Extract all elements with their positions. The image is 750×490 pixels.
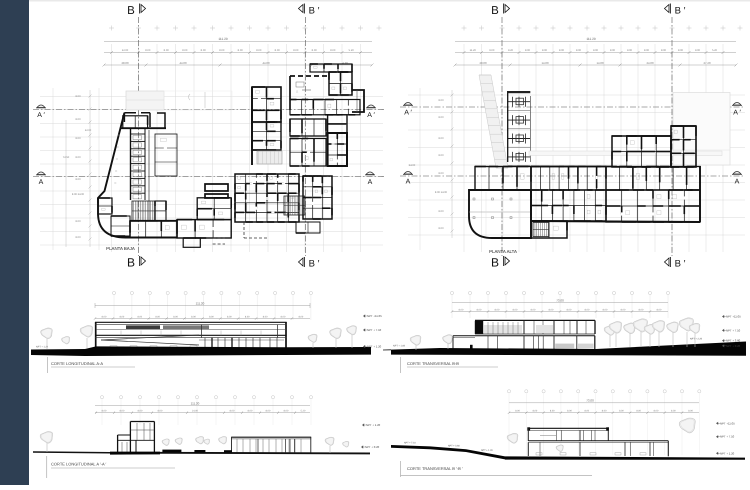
svg-text:8.00: 8.00 (75, 156, 81, 159)
svg-text:8.00: 8.00 (636, 410, 641, 413)
svg-text:8.00: 8.00 (559, 49, 565, 52)
svg-text:NPT + 0.20: NPT + 0.20 (365, 445, 380, 449)
svg-text:8.00: 8.00 (515, 410, 520, 413)
svg-text:8.00: 8.00 (438, 99, 444, 102)
svg-text:8.00: 8.00 (75, 137, 81, 140)
svg-text:64.00: 64.00 (409, 164, 416, 167)
svg-text:8.00: 8.00 (525, 49, 531, 52)
svg-text:NPT + 1.60: NPT + 1.60 (393, 344, 406, 347)
svg-text:8.00: 8.00 (75, 95, 81, 98)
svg-text:8.00: 8.00 (576, 49, 582, 52)
svg-text:B ′: B ′ (675, 259, 686, 270)
svg-text:8.00: 8.00 (238, 49, 244, 52)
svg-text:8.00: 8.00 (164, 49, 170, 52)
svg-text:11.20: 11.20 (470, 49, 477, 52)
svg-text:A ′: A ′ (367, 112, 375, 119)
svg-text:14.00: 14.00 (597, 61, 604, 65)
svg-text:8.00: 8.00 (120, 315, 125, 318)
svg-text:8.00: 8.00 (644, 49, 650, 52)
svg-text:B ′: B ′ (309, 6, 320, 17)
svg-text:8.00: 8.00 (102, 315, 107, 318)
svg-text:8.00: 8.00 (75, 236, 81, 239)
svg-text:8.00: 8.00 (549, 308, 554, 311)
svg-text:5.20: 5.20 (712, 49, 718, 52)
svg-text:111.20: 111.20 (196, 301, 205, 305)
svg-text:8.00: 8.00 (293, 49, 299, 52)
svg-text:8.00: 8.00 (219, 49, 225, 52)
svg-text:9.00: 9.00 (489, 49, 495, 52)
svg-text:CORTE TRANSVERSAL B ′-B ′: CORTE TRANSVERSAL B ′-B ′ (407, 466, 463, 471)
svg-text:8.00: 8.00 (158, 410, 163, 413)
svg-text:8.00: 8.00 (138, 410, 143, 413)
svg-text:8.00 24.00: 8.00 24.00 (72, 193, 85, 196)
svg-text:PLANTA ALTA: PLANTA ALTA (489, 249, 517, 254)
svg-text:B: B (491, 5, 499, 17)
svg-text:8.00: 8.00 (531, 308, 536, 311)
svg-text:8.00: 8.00 (550, 410, 555, 413)
svg-text:8.00: 8.00 (621, 308, 626, 311)
svg-text:NPT + 7.10: NPT + 7.10 (726, 328, 741, 332)
svg-text:NPT + 7.10: NPT + 7.10 (720, 435, 735, 439)
svg-text:9.00: 9.00 (593, 49, 599, 52)
svg-text:NPT + 3.60: NPT + 3.60 (448, 444, 460, 447)
svg-text:B: B (127, 5, 135, 17)
svg-text:28.00: 28.00 (122, 61, 129, 65)
svg-text:8.00: 8.00 (75, 118, 81, 121)
svg-text:8.00: 8.00 (120, 410, 125, 413)
svg-text:111.20: 111.20 (191, 401, 200, 405)
svg-text:CORTE TRANSVERSAL B-B: CORTE TRANSVERSAL B-B (407, 361, 459, 366)
svg-text:8.00: 8.00 (227, 315, 232, 318)
svg-text:8.00: 8.00 (477, 308, 482, 311)
svg-text:8.00: 8.00 (102, 410, 107, 413)
svg-text:8.00: 8.00 (513, 308, 518, 311)
svg-text:8.00: 8.00 (281, 315, 286, 318)
svg-text:9.00: 9.00 (695, 49, 701, 52)
svg-text:8.00: 8.00 (438, 172, 444, 175)
svg-text:8.00: 8.00 (610, 49, 616, 52)
svg-text:8.00: 8.00 (495, 308, 500, 311)
svg-text:NPT + 3.60: NPT + 3.60 (726, 339, 741, 343)
svg-text:8.00: 8.00 (75, 220, 81, 223)
svg-text:8.00: 8.00 (284, 410, 289, 413)
svg-text:8.00: 8.00 (75, 178, 81, 181)
svg-text:111.20: 111.20 (218, 37, 228, 41)
svg-text:PLANTA BAJA: PLANTA BAJA (106, 246, 135, 251)
svg-text:27.20: 27.20 (704, 61, 711, 65)
svg-text:12.00: 12.00 (85, 129, 92, 132)
svg-text:8.00: 8.00 (201, 49, 207, 52)
svg-text:8.00: 8.00 (312, 49, 318, 52)
svg-text:8.00: 8.00 (182, 49, 188, 52)
svg-text:8.00: 8.00 (585, 308, 590, 311)
svg-text:8.00: 8.00 (245, 315, 250, 318)
svg-text:12.00: 12.00 (122, 49, 129, 52)
svg-text:5.20: 5.20 (349, 49, 355, 52)
svg-text:72.50: 72.50 (63, 156, 70, 159)
svg-text:NPT + 0.20: NPT + 0.20 (726, 344, 741, 348)
svg-text:28.00: 28.00 (480, 61, 487, 65)
svg-text:8.00: 8.00 (266, 410, 271, 413)
svg-text:8.00: 8.00 (661, 49, 667, 52)
svg-text:8.00: 8.00 (145, 49, 151, 52)
svg-text:8.00: 8.00 (173, 315, 178, 318)
svg-text:8.00: 8.00 (438, 137, 444, 140)
svg-text:NPT + 2.20: NPT + 2.20 (690, 338, 703, 341)
svg-text:NPT + 7.10: NPT + 7.10 (367, 328, 382, 332)
svg-text:NPT + 1.20: NPT + 1.20 (481, 449, 493, 452)
svg-text:8.00: 8.00 (330, 49, 336, 52)
svg-text:NPT +11.05: NPT +11.05 (367, 314, 382, 318)
svg-text:14.00: 14.00 (542, 61, 549, 65)
svg-text:B ′: B ′ (675, 6, 686, 17)
svg-text:8.00: 8.00 (533, 410, 538, 413)
svg-text:8.00 14.00: 8.00 14.00 (435, 191, 448, 194)
svg-text:8.00: 8.00 (688, 410, 693, 413)
svg-text:NPT +11.05: NPT +11.05 (720, 421, 735, 425)
svg-text:A: A (368, 179, 373, 186)
svg-text:44.00: 44.00 (263, 61, 270, 65)
svg-text:8.00: 8.00 (459, 308, 464, 311)
svg-text:8.00: 8.00 (438, 210, 444, 213)
svg-text:8.00: 8.00 (137, 315, 142, 318)
svg-text:8.00: 8.00 (275, 49, 281, 52)
svg-text:8.00: 8.00 (603, 308, 608, 311)
svg-text:8.00: 8.00 (584, 410, 589, 413)
svg-text:8.00: 8.00 (263, 315, 268, 318)
svg-text:B ′: B ′ (309, 259, 320, 270)
svg-text:8.00: 8.00 (619, 410, 624, 413)
svg-text:A: A (406, 179, 411, 186)
svg-text:8.00: 8.00 (657, 308, 662, 311)
svg-text:9.00: 9.00 (627, 49, 633, 52)
svg-text:CORTE LONGITUDINAL A-A: CORTE LONGITUDINAL A-A (51, 361, 103, 366)
svg-text:NPT + 1.20: NPT + 1.20 (367, 345, 382, 349)
svg-text:NPT + 7.10: NPT + 7.10 (404, 442, 416, 445)
svg-text:5.20: 5.20 (301, 410, 306, 413)
svg-text:8.00: 8.00 (639, 308, 644, 311)
svg-text:8.00: 8.00 (191, 315, 196, 318)
svg-text:CORTE LONGITUDINAL A ′-A ′: CORTE LONGITUDINAL A ′-A ′ (51, 462, 107, 467)
svg-text:8.00: 8.00 (230, 410, 235, 413)
svg-text:8.00: 8.00 (678, 49, 684, 52)
svg-text:NPT + 1.20: NPT + 1.20 (366, 423, 381, 427)
svg-text:A ′: A ′ (404, 110, 412, 117)
svg-text:73.00: 73.00 (586, 399, 594, 403)
svg-text:NPT + 1.20: NPT + 1.20 (720, 451, 735, 455)
svg-text:44.00: 44.00 (180, 61, 187, 65)
svg-text:A: A (735, 179, 740, 186)
svg-text:8.00: 8.00 (602, 410, 607, 413)
svg-text:B: B (491, 256, 499, 270)
svg-text:8.00: 8.00 (654, 410, 659, 413)
svg-text:A: A (39, 179, 44, 186)
svg-text:8.00: 8.00 (438, 116, 444, 119)
svg-text:8.00: 8.00 (248, 410, 253, 413)
svg-text:8.00: 8.00 (299, 315, 304, 318)
svg-text:8.00: 8.00 (567, 410, 572, 413)
svg-text:8.00: 8.00 (155, 315, 160, 318)
svg-text:24.00: 24.00 (647, 61, 654, 65)
svg-text:73.00: 73.00 (556, 298, 564, 302)
svg-text:8.00: 8.00 (438, 227, 444, 230)
svg-text:B: B (127, 256, 135, 270)
svg-text:9.20: 9.20 (508, 49, 514, 52)
svg-text:8.00: 8.00 (542, 49, 548, 52)
svg-text:24.00: 24.00 (192, 410, 199, 413)
svg-text:8.00: 8.00 (256, 49, 262, 52)
svg-text:8.00: 8.00 (209, 315, 214, 318)
svg-text:8.00: 8.00 (671, 410, 676, 413)
svg-text:NPT +11.05: NPT +11.05 (726, 315, 741, 319)
svg-text:A ′: A ′ (37, 112, 45, 119)
svg-text:8.00: 8.00 (567, 308, 572, 311)
svg-text:A ′: A ′ (733, 110, 741, 117)
svg-text:111.20: 111.20 (586, 37, 596, 41)
svg-text:8.00: 8.00 (438, 154, 444, 157)
